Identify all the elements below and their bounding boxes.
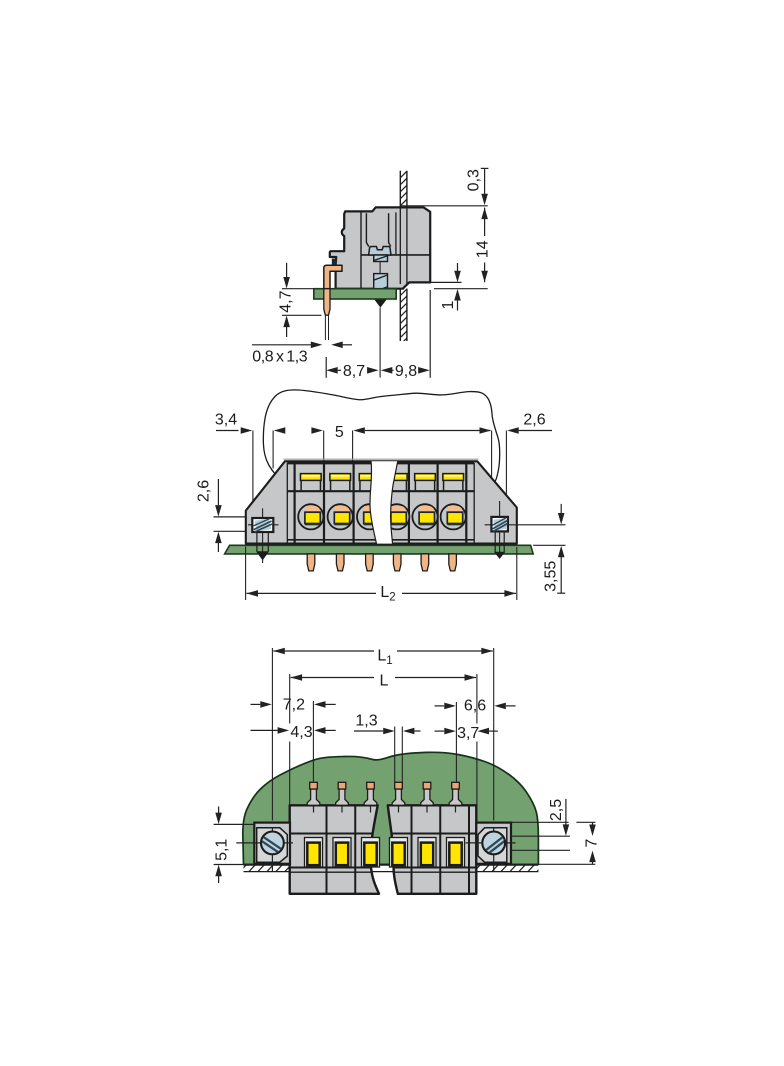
svg-text:7: 7 [583, 839, 600, 848]
svg-text:7,2: 7,2 [283, 697, 305, 714]
svg-text:1,3: 1,3 [355, 713, 377, 730]
svg-text:6,6: 6,6 [464, 698, 486, 715]
svg-text:4,3: 4,3 [290, 724, 312, 741]
svg-text:2,6: 2,6 [523, 411, 545, 428]
svg-text:L: L [380, 673, 389, 690]
svg-text:8,7: 8,7 [343, 363, 365, 380]
svg-text:3,4: 3,4 [215, 411, 237, 428]
svg-text:5: 5 [335, 424, 344, 441]
svg-text:14: 14 [474, 240, 491, 258]
svg-text:3,7: 3,7 [457, 725, 479, 742]
svg-text:0,8 x 1,3: 0,8 x 1,3 [252, 348, 307, 365]
svg-text:2,5: 2,5 [548, 799, 565, 821]
svg-text:5,1: 5,1 [213, 839, 230, 861]
svg-text:2,6: 2,6 [195, 480, 212, 502]
svg-text:3,55: 3,55 [542, 561, 559, 592]
svg-text:4,7: 4,7 [278, 290, 295, 312]
svg-text:1: 1 [440, 300, 457, 309]
svg-text:9,8: 9,8 [395, 363, 417, 380]
svg-text:0,3: 0,3 [465, 169, 482, 191]
